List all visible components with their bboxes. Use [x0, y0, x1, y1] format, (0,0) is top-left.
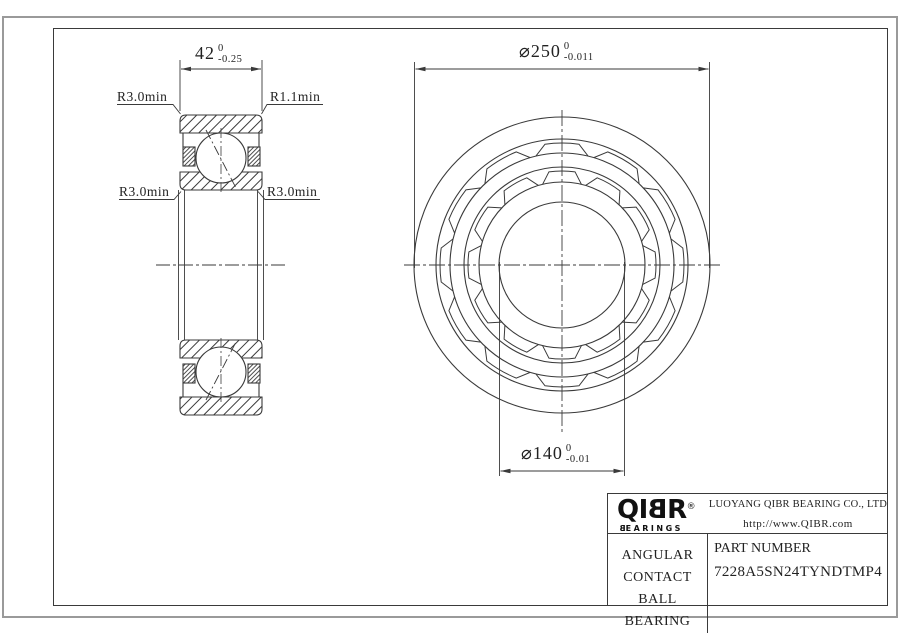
ball-top — [196, 133, 246, 183]
dim-od-tol-upper: 0 — [564, 42, 594, 53]
registered-mark: ® — [687, 502, 696, 512]
company-website[interactable]: http://www.QIBR.com — [709, 519, 887, 530]
part-number-label: PART NUMBER — [714, 542, 882, 556]
arrowhead-left — [181, 67, 191, 72]
dim-bore-tol-upper: 0 — [566, 444, 590, 455]
arrowhead-right — [699, 67, 709, 72]
title-block-top-row: QIBR® BEARINGS LUOYANG QIBR BEARING CO.,… — [608, 494, 887, 534]
dim-od-tol-lower: -0.011 — [564, 53, 594, 64]
arrowhead-right — [614, 469, 624, 474]
dim-width-42 — [180, 60, 262, 111]
part-number-value: 7228A5SN24TYNDTMP4 — [714, 565, 882, 580]
product-type-line2: BALL BEARING — [608, 589, 707, 633]
arrowhead-left — [501, 469, 511, 474]
part-number-cell: PART NUMBER 7228A5SN24TYNDTMP4 — [708, 534, 887, 633]
label-radius-inner-right: R3.0min — [267, 185, 317, 199]
bearing-drawing-sheet: 42 0 -0.25 ⌀250 0 -0.011 ⌀140 0 -0.01 R3… — [0, 0, 900, 636]
dim-width-tol-lower: -0.25 — [218, 55, 242, 66]
product-type-line1: ANGULAR CONTACT — [608, 545, 707, 589]
dim-text-bore-diameter: ⌀140 0 -0.01 — [521, 444, 590, 465]
title-block: QIBR® BEARINGS LUOYANG QIBR BEARING CO.,… — [607, 493, 888, 606]
product-type-cell: ANGULAR CONTACT BALL BEARING — [608, 534, 708, 633]
label-radius-outer-left: R3.0min — [117, 90, 167, 104]
company-name: LUOYANG QIBR BEARING CO., LTD — [709, 500, 887, 511]
dim-text-outer-diameter: ⌀250 0 -0.011 — [519, 42, 594, 63]
dim-od-value: ⌀250 — [519, 42, 561, 60]
dim-bore-value: ⌀140 — [521, 444, 563, 462]
arrowhead-left — [416, 67, 426, 72]
logo-subtext: BEARINGS — [617, 524, 709, 533]
label-radius-inner-left: R3.0min — [119, 185, 169, 199]
cage-bottom-right — [248, 364, 260, 383]
outer-ring-bottom — [180, 397, 262, 415]
ball-bottom — [196, 347, 246, 397]
cage-bottom-left — [183, 364, 195, 383]
company-cell: LUOYANG QIBR BEARING CO., LTD http://www… — [709, 494, 887, 533]
section-view — [117, 60, 323, 415]
arrowhead-right — [251, 67, 261, 72]
front-view — [404, 62, 722, 476]
dim-text-width: 42 0 -0.25 — [195, 44, 242, 65]
brand-logo: QIBR® BEARINGS — [608, 494, 709, 533]
dim-width-value: 42 — [195, 44, 215, 62]
label-radius-outer-right: R1.1min — [270, 90, 320, 104]
cage-top-left — [183, 147, 195, 166]
logo-text: QIBR® — [617, 497, 709, 523]
dim-bore-tol-lower: -0.01 — [566, 455, 590, 466]
cage-top-right — [248, 147, 260, 166]
title-block-bottom-row: ANGULAR CONTACT BALL BEARING PART NUMBER… — [608, 534, 887, 633]
dim-width-tol-upper: 0 — [218, 44, 242, 55]
